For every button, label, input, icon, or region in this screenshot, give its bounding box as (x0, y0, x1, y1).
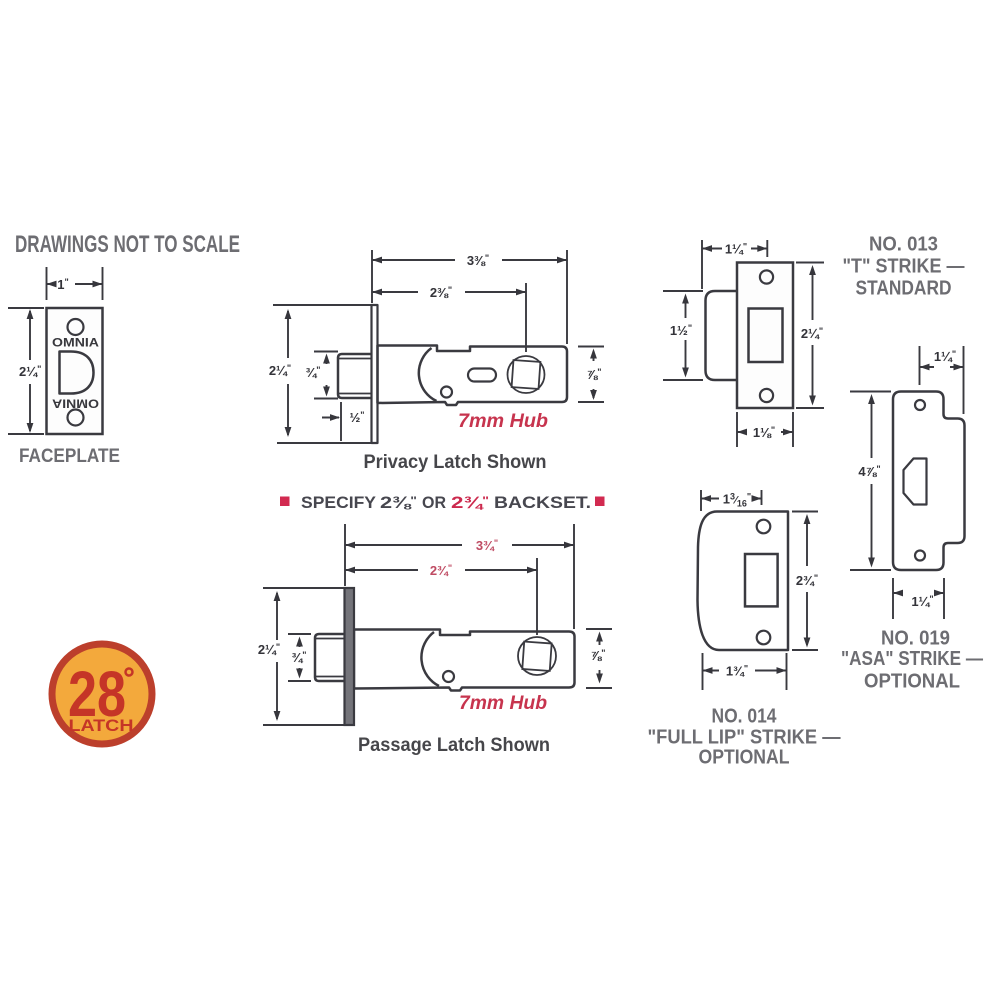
svg-text:7mm Hub: 7mm Hub (459, 693, 547, 714)
svg-text:"T" STRIKE —: "T" STRIKE — (843, 255, 965, 278)
svg-text:NO. 013: NO. 013 (869, 233, 938, 256)
svg-text:OPTIONAL: OPTIONAL (699, 746, 790, 769)
svg-text:7mm Hub: 7mm Hub (458, 411, 548, 432)
svg-text:DRAWINGS NOT TO SCALE: DRAWINGS NOT TO SCALE (15, 231, 240, 258)
svg-text:SPECIFY: SPECIFY (301, 493, 377, 512)
svg-text:Privacy Latch Shown: Privacy Latch Shown (364, 452, 547, 473)
svg-text:Passage Latch Shown: Passage Latch Shown (358, 735, 550, 756)
svg-text:OMNIA: OMNIA (52, 397, 99, 409)
svg-text:NO. 014: NO. 014 (712, 705, 777, 728)
svg-text:OPTIONAL: OPTIONAL (864, 670, 960, 693)
svg-text:STANDARD: STANDARD (856, 277, 952, 300)
svg-text:OR: OR (422, 493, 446, 512)
svg-text:OMNIA: OMNIA (52, 338, 99, 350)
svg-text:"ASA" STRIKE —: "ASA" STRIKE — (841, 647, 983, 670)
svg-text:FACEPLATE: FACEPLATE (19, 446, 120, 467)
svg-text:LATCH: LATCH (69, 716, 134, 735)
svg-text:BACKSET.: BACKSET. (494, 493, 591, 512)
